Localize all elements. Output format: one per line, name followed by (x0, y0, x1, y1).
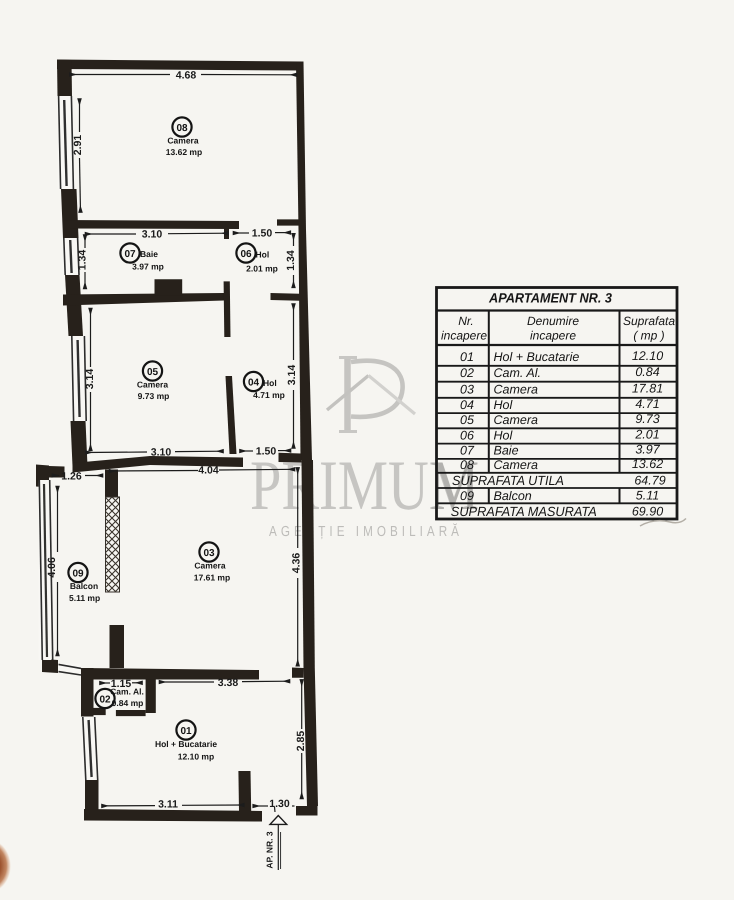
svg-text:Camera: Camera (494, 413, 539, 427)
svg-text:06: 06 (460, 428, 474, 442)
svg-text:12.10: 12.10 (632, 349, 663, 363)
svg-text:1.50: 1.50 (256, 446, 277, 458)
svg-text:Nr.: Nr. (458, 314, 474, 328)
svg-text:07: 07 (460, 444, 475, 458)
svg-text:08: 08 (176, 123, 188, 134)
svg-text:Camera: Camera (494, 383, 539, 397)
svg-text:02: 02 (460, 366, 474, 380)
svg-text:9.73 mp: 9.73 mp (138, 391, 170, 401)
svg-text:4.68: 4.68 (176, 70, 197, 82)
svg-text:09: 09 (72, 569, 84, 580)
svg-text:04: 04 (460, 398, 474, 412)
svg-text:17.81: 17.81 (632, 382, 663, 396)
svg-text:Balcon: Balcon (494, 489, 532, 503)
svg-text:2.01 mp: 2.01 mp (246, 264, 278, 274)
svg-text:05: 05 (147, 367, 159, 378)
svg-text:2.85: 2.85 (295, 731, 307, 752)
svg-text:0.84 mp: 0.84 mp (112, 698, 144, 708)
svg-text:APARTAMENT NR. 3: APARTAMENT NR. 3 (488, 291, 612, 306)
svg-text:4.36: 4.36 (291, 553, 303, 574)
svg-text:1.30: 1.30 (269, 798, 290, 810)
svg-text:Balcon: Balcon (70, 581, 98, 591)
svg-text:01: 01 (180, 726, 192, 737)
svg-text:13.62 mp: 13.62 mp (166, 147, 202, 157)
svg-text:1.50: 1.50 (252, 228, 273, 240)
svg-text:3.10: 3.10 (151, 447, 172, 459)
svg-text:Camera: Camera (137, 380, 168, 390)
svg-text:Hol: Hol (263, 378, 277, 388)
svg-text:09: 09 (460, 489, 474, 503)
svg-text:Baie: Baie (494, 444, 519, 458)
svg-text:Baie: Baie (140, 249, 158, 259)
svg-text:3.10: 3.10 (142, 229, 163, 241)
svg-text:04: 04 (248, 378, 260, 389)
svg-text:incapere: incapere (530, 329, 576, 343)
svg-text:Cam. Al.: Cam. Al. (110, 687, 144, 697)
svg-text:05: 05 (460, 413, 474, 427)
svg-text:12.10 mp: 12.10 mp (178, 751, 214, 761)
svg-text:Suprafata: Suprafata (623, 314, 675, 328)
svg-text:Cam. Al.: Cam. Al. (494, 366, 541, 380)
svg-text:07: 07 (124, 249, 136, 260)
svg-text:64.79: 64.79 (634, 474, 665, 488)
svg-text:0.84: 0.84 (635, 365, 659, 379)
svg-text:1.26: 1.26 (61, 471, 82, 483)
svg-text:SUPRAFATA UTILA: SUPRAFATA UTILA (452, 473, 564, 488)
svg-text:06: 06 (240, 249, 252, 260)
svg-text:Hol: Hol (256, 250, 270, 260)
svg-text:3.14: 3.14 (84, 369, 96, 390)
svg-text:Hol + Bucatarie: Hol + Bucatarie (155, 739, 217, 749)
svg-text:1.34: 1.34 (285, 250, 297, 271)
svg-text:SUPRAFATA MASURATA: SUPRAFATA MASURATA (451, 504, 597, 519)
svg-text:03: 03 (460, 383, 474, 397)
svg-text:3.97 mp: 3.97 mp (132, 262, 164, 272)
svg-text:5.11 mp: 5.11 mp (69, 593, 100, 603)
svg-text:01: 01 (460, 350, 474, 364)
svg-text:4.71 mp: 4.71 mp (253, 390, 285, 400)
svg-text:4.06: 4.06 (46, 557, 58, 578)
svg-text:3.11: 3.11 (158, 798, 178, 810)
svg-text:Hol: Hol (494, 398, 514, 412)
svg-text:69.90: 69.90 (632, 505, 663, 519)
svg-text:Camera: Camera (167, 136, 198, 146)
svg-text:3.97: 3.97 (635, 443, 660, 457)
svg-text:Denumire: Denumire (527, 314, 579, 328)
svg-text:Hol: Hol (494, 428, 514, 442)
svg-text:AP. NR. 3: AP. NR. 3 (265, 831, 275, 868)
svg-text:2.91: 2.91 (72, 135, 84, 156)
svg-text:1.34: 1.34 (77, 250, 89, 271)
svg-text:4.04: 4.04 (198, 465, 219, 477)
svg-text:incapere: incapere (441, 329, 487, 343)
svg-text:( mp ): ( mp ) (633, 329, 664, 343)
svg-text:3.38: 3.38 (218, 677, 239, 689)
svg-text:Camera: Camera (494, 458, 539, 472)
svg-text:03: 03 (203, 548, 215, 559)
svg-text:Camera: Camera (194, 561, 225, 571)
svg-text:9.73: 9.73 (635, 412, 659, 426)
svg-text:Hol + Bucatarie: Hol + Bucatarie (494, 350, 580, 364)
svg-text:17.61 mp: 17.61 mp (194, 573, 230, 583)
svg-text:08: 08 (460, 458, 474, 472)
svg-text:2.01: 2.01 (634, 427, 659, 441)
svg-text:13.62: 13.62 (632, 457, 663, 471)
svg-text:4.71: 4.71 (635, 397, 659, 411)
svg-text:5.11: 5.11 (636, 489, 659, 503)
svg-text:3.14: 3.14 (286, 365, 298, 386)
